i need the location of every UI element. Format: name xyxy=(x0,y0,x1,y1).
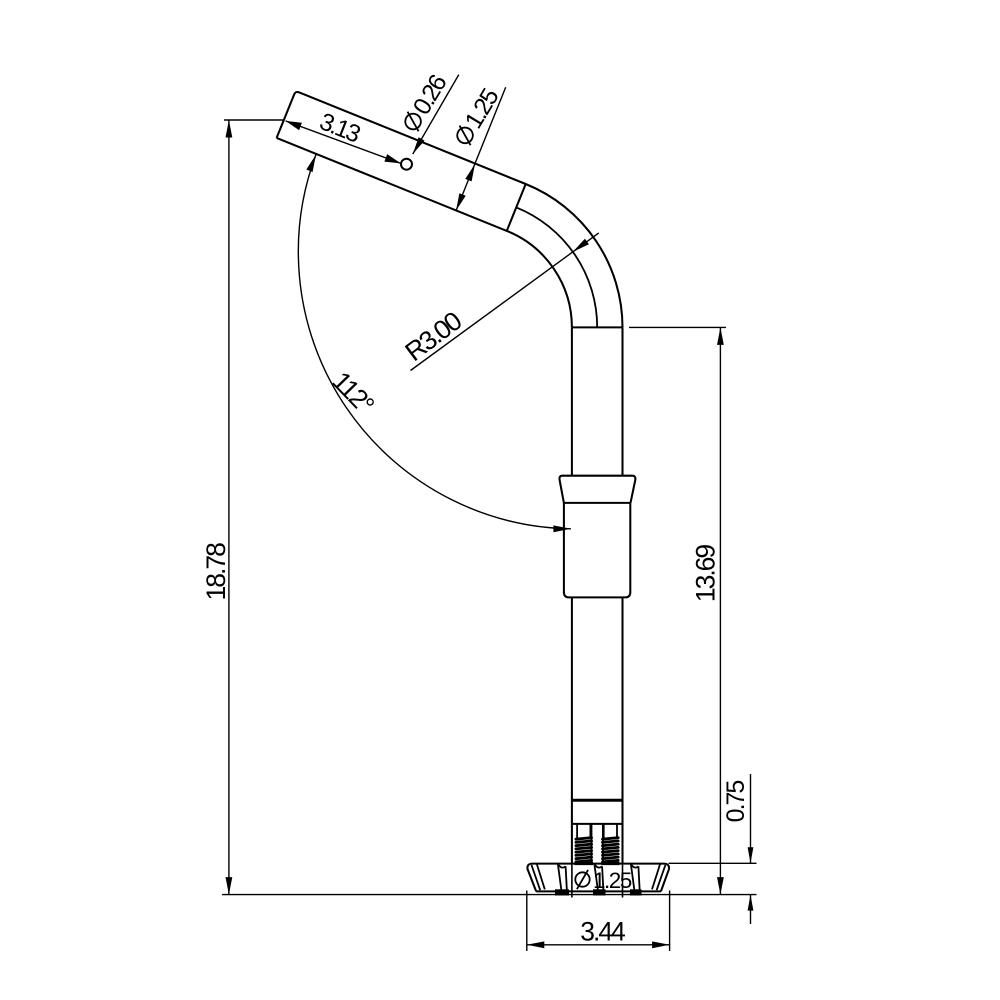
svg-text:R3.00: R3.00 xyxy=(399,306,467,367)
svg-text:0.75: 0.75 xyxy=(722,781,750,823)
svg-text:112°: 112° xyxy=(326,366,379,419)
svg-text:3.13: 3.13 xyxy=(316,108,364,148)
svg-text:13.69: 13.69 xyxy=(691,545,721,603)
svg-text:3.44: 3.44 xyxy=(580,916,625,946)
svg-text:0.26: 0.26 xyxy=(408,71,452,120)
svg-text:18.78: 18.78 xyxy=(201,543,231,601)
svg-text:1.25: 1.25 xyxy=(460,84,504,133)
svg-text:1.25: 1.25 xyxy=(593,868,632,893)
